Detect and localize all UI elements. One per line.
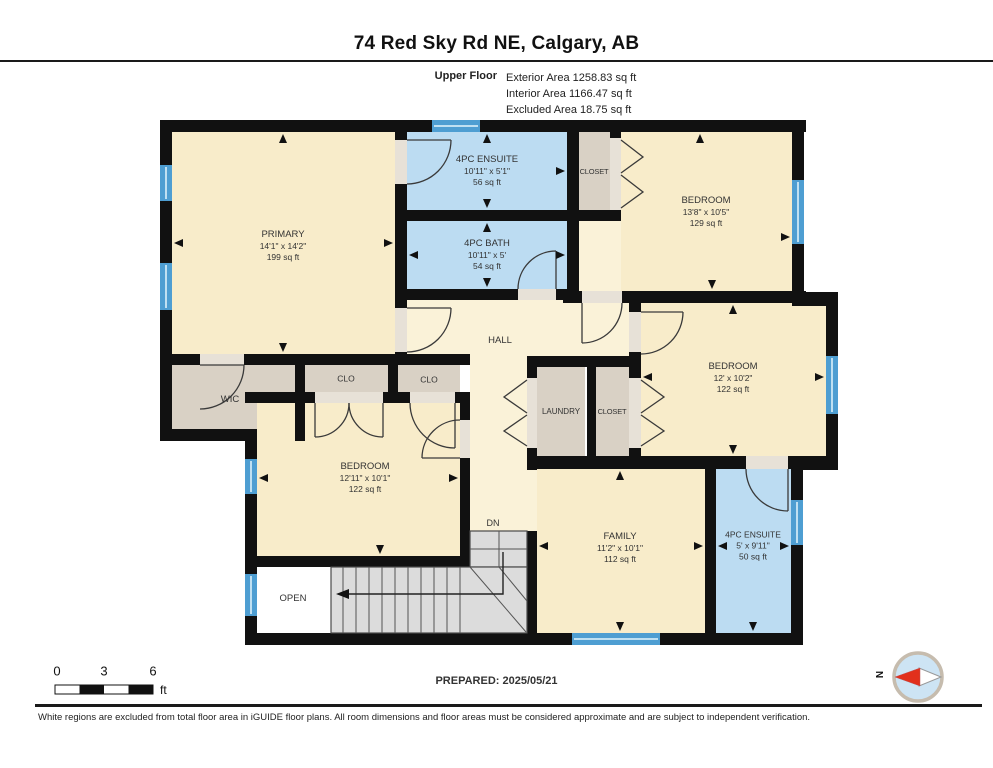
floor-plan-svg <box>0 0 993 768</box>
room-label-bedroom-e: BEDROOM 12' x 10'2" 122 sq ft <box>708 361 757 395</box>
room-label-family: FAMILY 11'2" x 10'1" 112 sq ft <box>597 531 643 565</box>
floorplan-page: 74 Red Sky Rd NE, Calgary, AB Upper Floo… <box>0 0 993 768</box>
room-label-open: OPEN <box>280 593 307 605</box>
room-label-bath: 4PC BATH 10'11" x 5' 54 sq ft <box>464 238 510 272</box>
room-label-closet-top: CLOSET <box>580 167 609 177</box>
footer-divider <box>35 704 982 707</box>
room-label-clo-left: CLO <box>337 373 354 384</box>
room-label-clo-right: CLO <box>420 374 437 385</box>
stairs-dn-label: DN <box>487 518 500 530</box>
room-label-hall: HALL <box>488 335 512 347</box>
prepared-date: PREPARED: 2025/05/21 <box>0 675 993 687</box>
disclaimer-text: White regions are excluded from total fl… <box>38 712 810 723</box>
room-label-ensuite-se: 4PC ENSUITE 5' x 9'11" 50 sq ft <box>725 529 781 562</box>
floor-label: Upper Floor <box>435 70 497 82</box>
room-label-bedroom-sw: BEDROOM 12'11" x 10'1" 122 sq ft <box>340 461 391 495</box>
room-label-primary: PRIMARY 14'1" x 14'2" 199 sq ft <box>260 229 307 263</box>
room-label-closet-mid: CLOSET <box>598 407 627 417</box>
header-divider <box>0 60 993 62</box>
page-title: 74 Red Sky Rd NE, Calgary, AB <box>0 33 993 55</box>
room-label-bedroom-ne: BEDROOM 13'8" x 10'5" 129 sq ft <box>681 195 730 229</box>
room-label-ensuite-top: 4PC ENSUITE 10'11" x 5'1" 56 sq ft <box>456 154 518 188</box>
excluded-area: Excluded Area 18.75 sq ft <box>506 102 636 118</box>
room-label-laundry: LAUNDRY <box>542 407 580 417</box>
compass-north-label: N <box>875 671 886 678</box>
hall-family-connector <box>525 469 539 531</box>
room-label-wic: WIC <box>221 394 239 406</box>
exterior-area: Exterior Area 1258.83 sq ft <box>506 70 636 86</box>
area-summary: Exterior Area 1258.83 sq ft Interior Are… <box>506 70 636 118</box>
interior-area: Interior Area 1166.47 sq ft <box>506 86 636 102</box>
